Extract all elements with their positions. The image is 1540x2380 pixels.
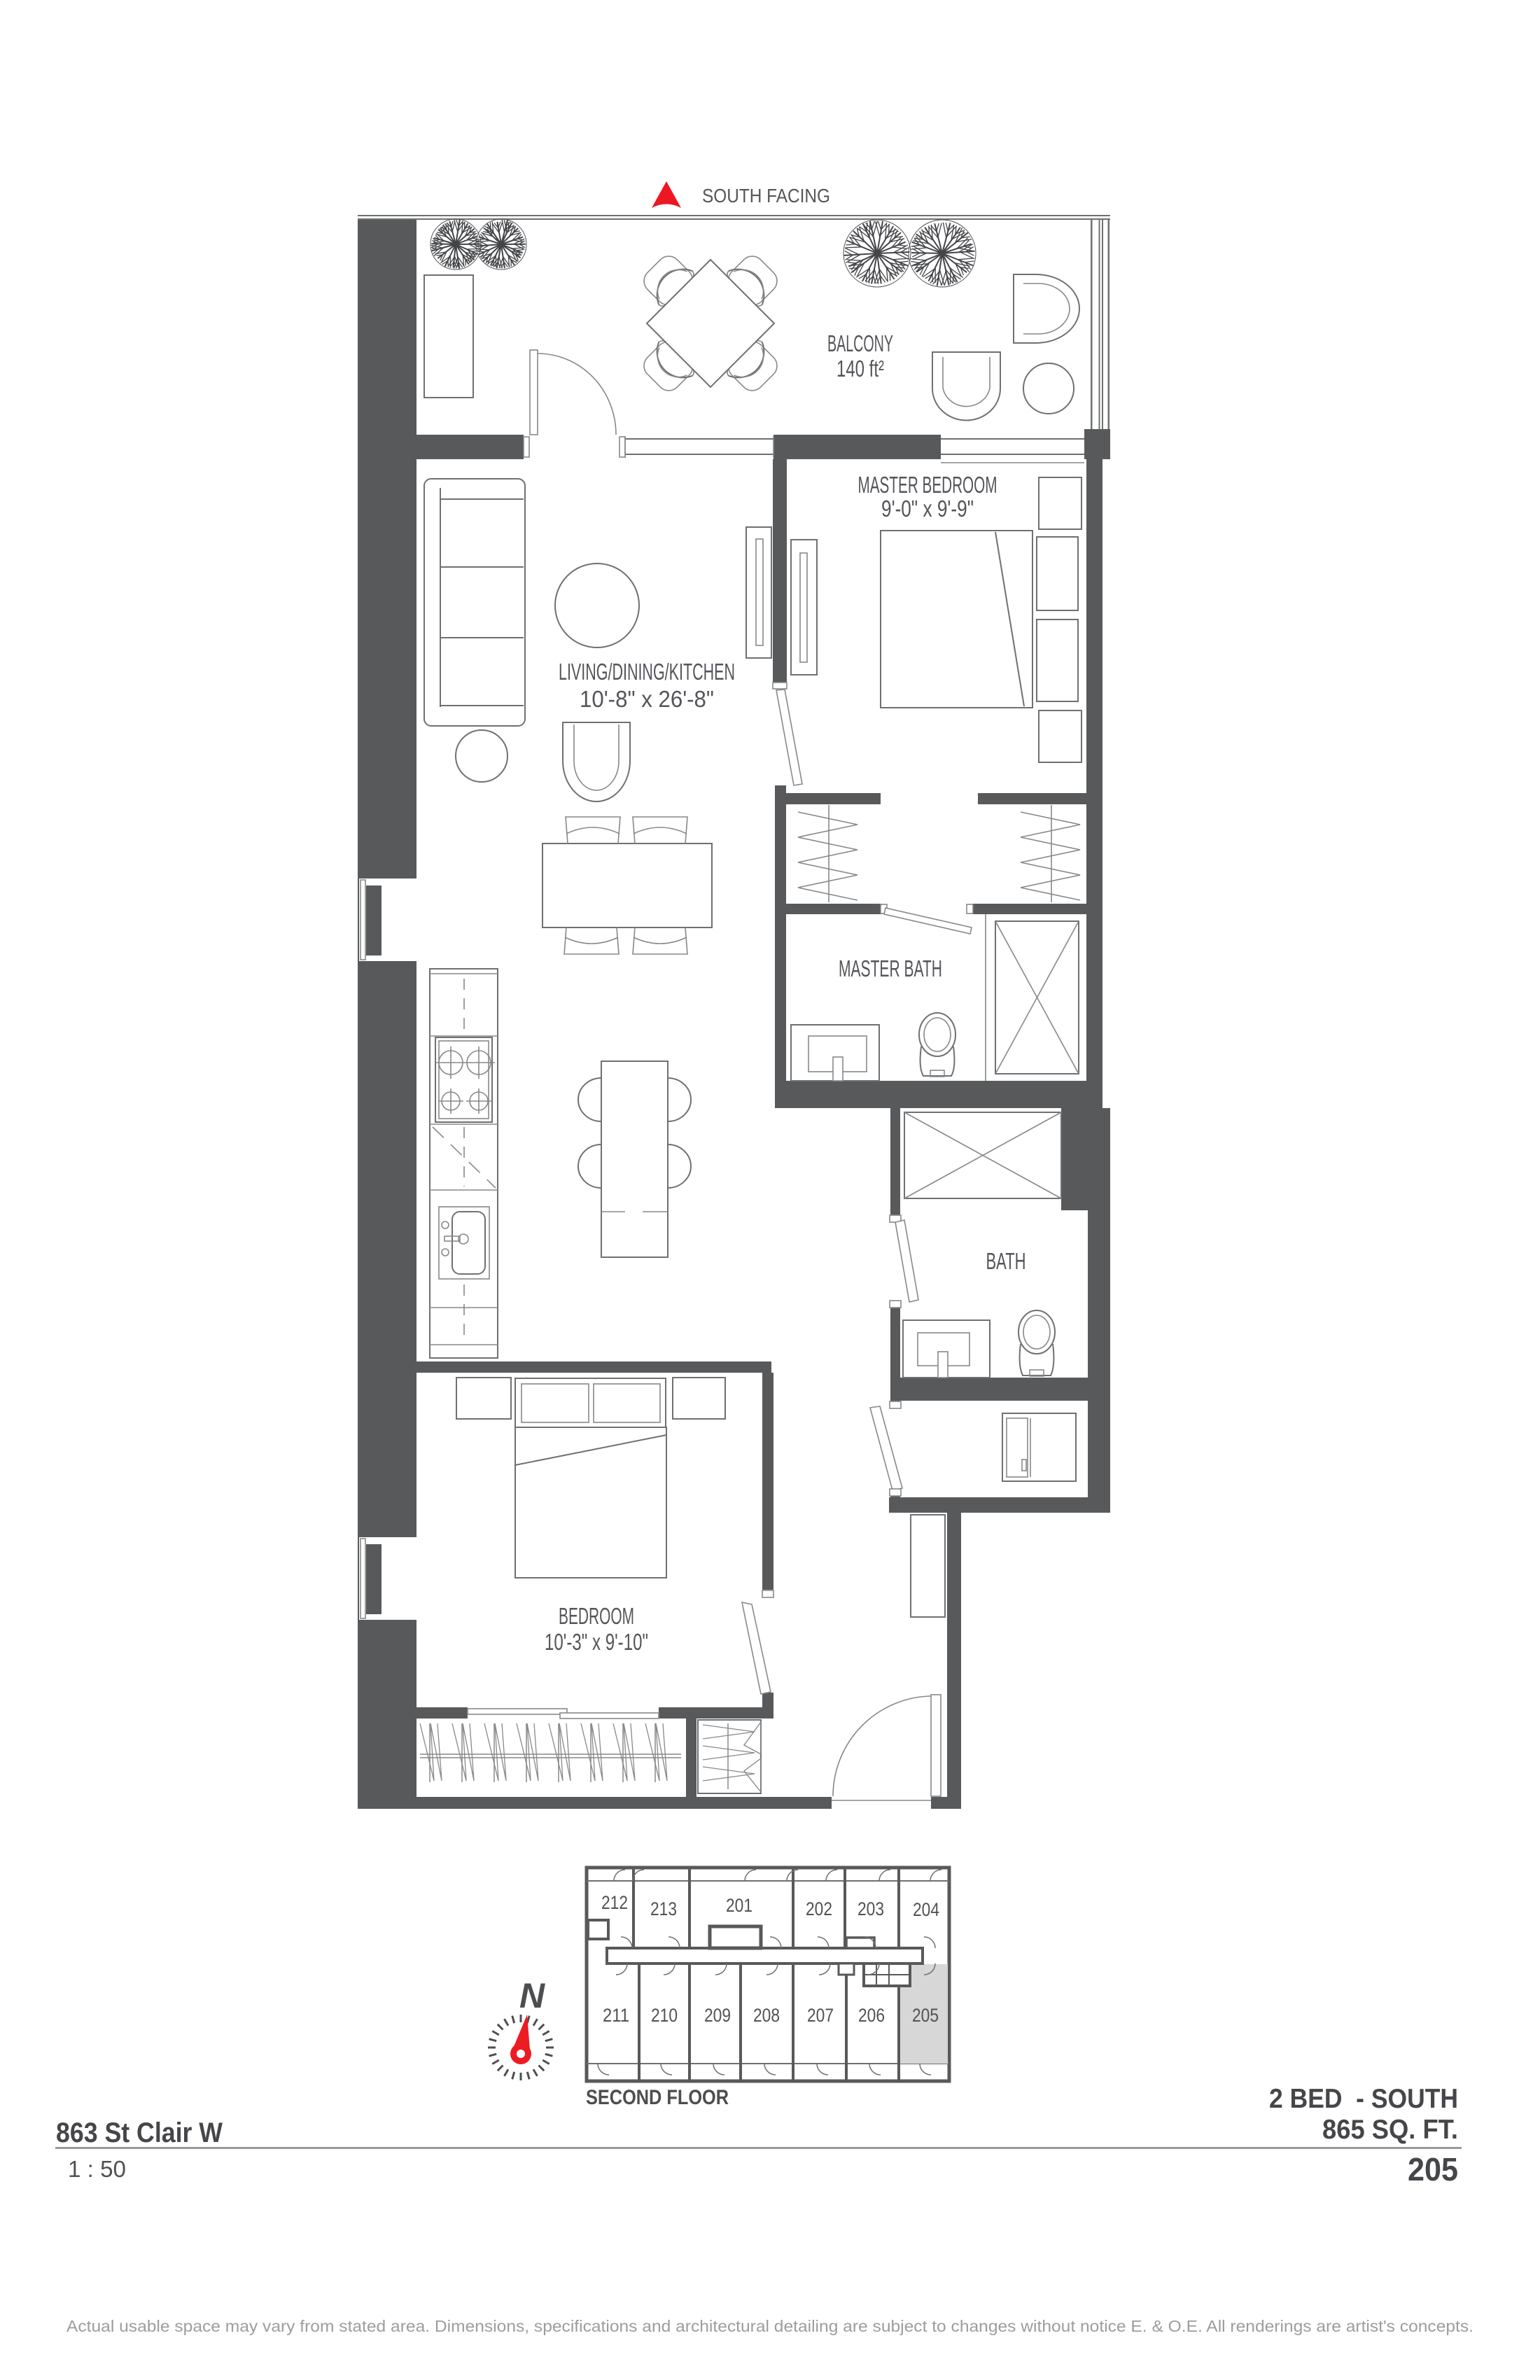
svg-text:863 St Clair W: 863 St Clair W (56, 2117, 223, 2148)
svg-text:209: 209 (704, 2005, 731, 2026)
svg-text:BATH: BATH (986, 1248, 1026, 1274)
svg-text:208: 208 (753, 2005, 780, 2026)
svg-text:SECOND FLOOR: SECOND FLOOR (586, 2086, 729, 2109)
svg-text:140 ft²: 140 ft² (836, 356, 884, 381)
svg-text:212: 212 (601, 1892, 628, 1913)
svg-text:211: 211 (603, 2005, 629, 2026)
svg-text:BALCONY: BALCONY (827, 330, 893, 356)
svg-text:N: N (519, 1976, 545, 2015)
svg-text:206: 206 (858, 2005, 885, 2026)
svg-text:2 BED - SOUTH: 2 BED - SOUTH (1269, 2084, 1458, 2114)
svg-text:202: 202 (806, 1898, 832, 1919)
svg-text:SOUTH FACING: SOUTH FACING (702, 185, 830, 206)
svg-text:1 : 50: 1 : 50 (68, 2156, 126, 2182)
svg-text:MASTER BATH: MASTER BATH (839, 955, 942, 981)
svg-text:213: 213 (650, 1898, 677, 1919)
svg-text:MASTER BEDROOM: MASTER BEDROOM (858, 472, 997, 498)
svg-text:BEDROOM: BEDROOM (559, 1603, 634, 1629)
svg-text:201: 201 (726, 1895, 752, 1916)
svg-text:9'-0" x 9'-9": 9'-0" x 9'-9" (881, 496, 974, 521)
svg-text:207: 207 (807, 2005, 834, 2026)
svg-text:865 SQ. FT.: 865 SQ. FT. (1322, 2115, 1458, 2145)
svg-text:205: 205 (1408, 2151, 1458, 2187)
svg-text:10'-8" x 26'-8": 10'-8" x 26'-8" (580, 686, 714, 712)
svg-text:203: 203 (857, 1898, 884, 1919)
svg-text:204: 204 (913, 1899, 939, 1920)
svg-text:210: 210 (651, 2005, 678, 2026)
svg-text:10'-3" x 9'-10": 10'-3" x 9'-10" (545, 1629, 648, 1655)
svg-text:205: 205 (912, 2005, 939, 2026)
svg-text:Actual usable space may vary f: Actual usable space may vary from stated… (66, 2317, 1473, 2335)
svg-text:LIVING/DINING/KITCHEN: LIVING/DINING/KITCHEN (559, 659, 735, 685)
